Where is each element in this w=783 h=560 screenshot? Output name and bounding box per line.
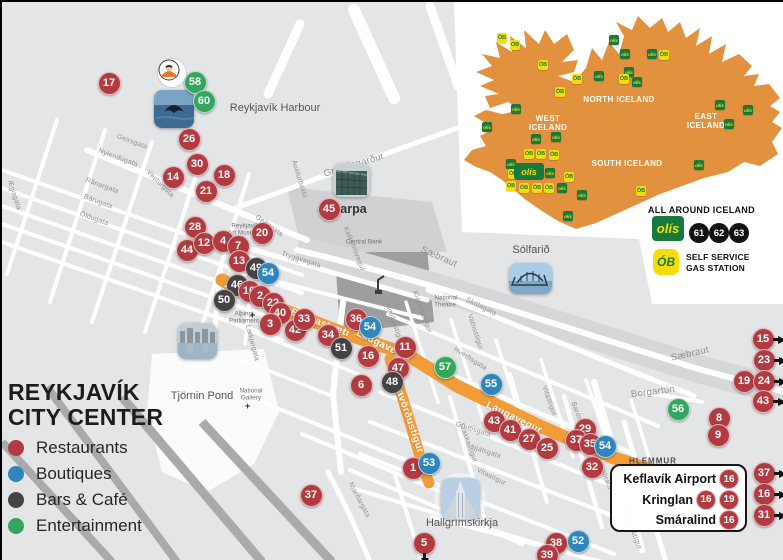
all-around-iceland-label: ALL AROUND ICELAND [648, 205, 755, 215]
map-marker-31: 31 [753, 504, 776, 527]
gas-station-olis: olís [724, 119, 734, 129]
whale-watching-photo [154, 90, 194, 128]
map-marker-55: 55 [480, 373, 503, 396]
legend-dot [8, 492, 24, 508]
map-marker-25: 25 [536, 437, 559, 460]
gas-station-olis: olís [511, 104, 521, 114]
map-marker-17: 17 [98, 72, 121, 95]
map-marker-57: 57 [434, 356, 457, 379]
place-label: Tjörnin Pond [171, 390, 233, 402]
map-marker-53: 53 [418, 452, 441, 475]
harpa-photo [333, 163, 370, 197]
gas-station-ob: ÓB [524, 149, 534, 159]
info-row-label: Kringlan [642, 493, 693, 507]
gas-station-olis: olís [594, 71, 604, 81]
gas-station-olis: olís [557, 183, 567, 193]
map-marker-20: 20 [251, 222, 274, 245]
map-marker-37: 37 [753, 462, 776, 485]
offmap-arrow-right [779, 491, 783, 499]
gas-station-ob: ÓB [659, 50, 669, 60]
offmap-arrow-right [779, 357, 783, 365]
info-row-label: Keflavík Airport [623, 472, 716, 486]
map-marker-26: 26 [178, 128, 201, 151]
inset-region-label: WESTICELAND [529, 114, 567, 132]
map-marker-11: 11 [394, 336, 417, 359]
gas-station-ob: ÓB [538, 60, 548, 70]
gas-station-ob: ÓB [532, 183, 542, 193]
sun-voyager-photo [509, 263, 552, 294]
map-marker-37: 37 [300, 484, 323, 507]
legend-item-label: Entertainment [36, 516, 142, 536]
legend-title-line2: CITY CENTER [8, 405, 163, 430]
info-row: Kringlan1619 [612, 490, 739, 511]
map-marker-15: 15 [752, 328, 775, 351]
gas-station-olis: olís [545, 168, 555, 178]
tjornin-photo [178, 323, 217, 359]
gas-station-ob: ÓB [549, 150, 559, 160]
info-badge-16: 16 [719, 510, 739, 530]
map-marker-45: 45 [318, 198, 341, 221]
legend-item: Boutiques [8, 466, 163, 483]
legend-item: Entertainment [8, 518, 163, 535]
map-marker-18: 18 [213, 164, 236, 187]
inset-region-label: NORTH ICELAND [583, 95, 654, 104]
offmap-arrow-right [778, 336, 783, 344]
station-number-63: 63 [729, 223, 749, 243]
map-marker-30: 30 [186, 153, 209, 176]
map-marker-39: 39 [536, 544, 559, 560]
place-label: Sólfarið [512, 244, 549, 256]
inset-region-label: EASTICELAND [687, 112, 725, 130]
church-cross-icon: + [250, 310, 255, 320]
gas-station-ob: ÓB [555, 87, 565, 97]
map-marker-51: 51 [330, 337, 353, 360]
inset-region-label: SOUTH ICELAND [592, 159, 663, 168]
olis-logo: olís [514, 163, 544, 180]
church-cross-icon: + [245, 401, 250, 411]
gas-station-olis: olís [577, 190, 587, 200]
gas-station-olis: olís [647, 49, 657, 59]
gas-station-olis: olís [551, 132, 561, 142]
offmap-arrow-right [779, 512, 783, 520]
whale-safari-logo [157, 58, 187, 88]
offmap-arrow-right [778, 398, 783, 406]
gas-station-olis: olís [715, 100, 725, 110]
offmap-arrow-right [779, 378, 783, 386]
self-service-label: SELF SERVICE [686, 252, 750, 262]
info-row: Smáralind16 [612, 510, 739, 531]
shopping-info-box: Keflavík Airport16Kringlan1619Smáralind1… [610, 464, 747, 532]
map-marker-23: 23 [753, 349, 776, 372]
map-marker-48: 48 [381, 371, 404, 394]
gas-station-olis: olís [743, 105, 753, 115]
legend-items: RestaurantsBoutiquesBars & CaféEntertain… [8, 440, 163, 535]
station-number-62: 62 [709, 223, 729, 243]
station-number-61: 61 [689, 223, 709, 243]
city-legend: REYKJAVÍK CITY CENTER RestaurantsBoutiqu… [8, 380, 163, 535]
map-marker-33: 33 [293, 308, 316, 331]
legend-item: Bars & Café [8, 492, 163, 509]
reykjavik-city-center-map: GrandagarðurGeirsgataNýlendugataRánargat… [0, 0, 783, 560]
gas-station-olis: olís [482, 122, 492, 132]
map-marker-54: 54 [359, 316, 382, 339]
map-marker-9: 9 [707, 424, 730, 447]
map-marker-32: 32 [581, 456, 604, 479]
map-marker-43: 43 [752, 390, 775, 413]
map-marker-16: 16 [753, 483, 776, 506]
info-badge-16: 16 [719, 469, 739, 489]
map-marker-21: 21 [195, 180, 218, 203]
gas-station-ob: ÓB [564, 172, 574, 182]
hallgrimskirkja-photo [441, 478, 480, 519]
place-label: Theatre [434, 302, 456, 309]
place-label: Reykjavík Harbour [230, 102, 320, 114]
gas-station-ob: ÓB [544, 183, 554, 193]
info-rows: Keflavík Airport16Kringlan1619Smáralind1… [612, 469, 739, 531]
legend-item-label: Boutiques [36, 464, 112, 484]
map-marker-60: 60 [193, 90, 216, 113]
place-label: National [434, 295, 457, 302]
info-row-label: Smáralind [656, 513, 716, 527]
gas-station-olis: olís [563, 211, 573, 221]
info-row: Keflavík Airport16 [612, 469, 739, 490]
gas-station-label: GAS STATION [686, 263, 745, 273]
gas-station-olis: olís [531, 134, 541, 144]
legend-item-label: Bars & Café [36, 490, 128, 510]
map-marker-14: 14 [162, 166, 185, 189]
olis-logo-large: olís [652, 216, 684, 241]
legend-dot [8, 440, 24, 456]
gas-station-ob: ÓB [510, 40, 520, 50]
map-marker-50: 50 [213, 289, 236, 312]
map-marker-3: 3 [259, 313, 282, 336]
gas-station-ob: ÓB [572, 74, 582, 84]
info-badge-16: 16 [696, 490, 716, 510]
offmap-arrow-right [779, 470, 783, 478]
legend-item: Restaurants [8, 440, 163, 457]
gas-station-olis: olís [620, 49, 630, 59]
gas-station-olis: olís [632, 77, 642, 87]
info-badge-19: 19 [719, 490, 739, 510]
place-label: National [239, 388, 262, 395]
map-marker-56: 56 [667, 398, 690, 421]
map-marker-54: 54 [257, 262, 280, 285]
map-marker-16: 16 [357, 345, 380, 368]
gas-station-ob: ÓB [506, 181, 516, 191]
legend-title-line1: REYKJAVÍK [8, 380, 163, 405]
gas-station-olis: olís [694, 160, 704, 170]
place-label: Central Bank [346, 239, 382, 246]
map-marker-5: 5 [413, 532, 436, 555]
map-marker-54: 54 [594, 435, 617, 458]
map-marker-52: 52 [567, 530, 590, 553]
legend-dot [8, 466, 24, 482]
gas-station-ob: ÓB [497, 33, 507, 43]
ob-logo: ÓB [653, 249, 679, 275]
gas-station-ob: ÓB [636, 186, 646, 196]
gas-station-ob: ÓB [536, 149, 546, 159]
gas-station-olis: olís [609, 35, 619, 45]
gas-station-ob: ÓB [619, 74, 629, 84]
legend-dot [8, 518, 24, 534]
map-marker-6: 6 [350, 374, 373, 397]
legend-item-label: Restaurants [36, 438, 128, 458]
gas-station-ob: ÓB [519, 183, 529, 193]
